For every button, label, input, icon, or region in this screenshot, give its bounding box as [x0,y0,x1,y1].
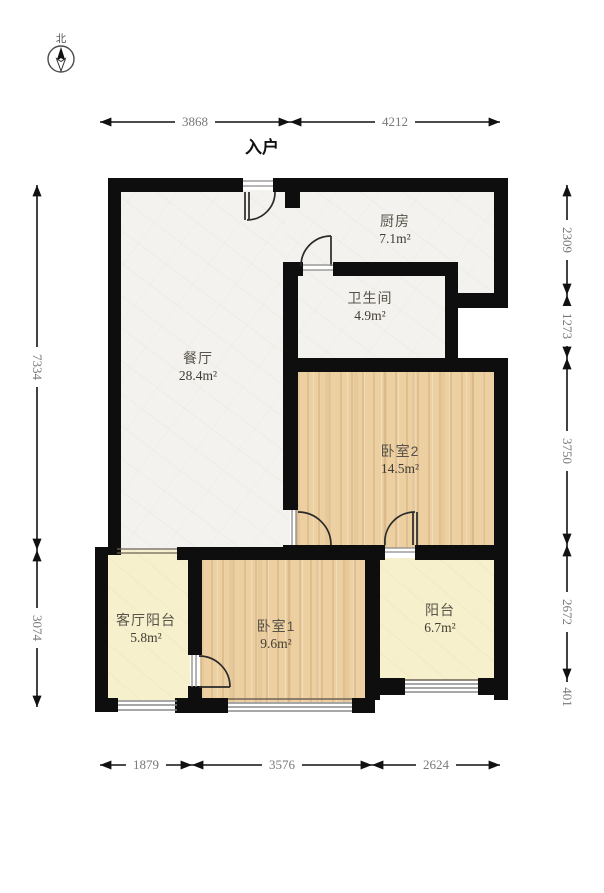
dimension-label: 2309 [560,227,575,253]
entrance-label: 入户 [245,137,279,157]
living-balcony-opening [117,549,177,553]
dimension-label: 4212 [382,114,408,129]
dimension-label: 2672 [560,599,575,625]
dimension-label: 3868 [182,114,208,129]
dimension-label: 1273 [560,313,575,339]
bedroom2-door-threshold [292,510,296,545]
living-balcony-window [118,701,177,710]
dimension-label: 3074 [30,615,45,642]
dimension-label: 401 [560,687,575,707]
thresholds [117,181,415,687]
bedroom1-door-threshold [192,655,196,687]
entrance-threshold [243,181,273,186]
bedroom2-door-arc [298,512,331,545]
windows [118,680,478,711]
bathroom-door-threshold [303,265,333,270]
dimension-labels-horizontal: 3868 4212 1879 3576 2624 [126,114,456,772]
balcony-door-arc [385,512,417,545]
bedroom1-door-arc [199,656,230,687]
dimension-labels-vertical: 7334 3074 2309 1273 3750 2672 [30,220,575,712]
plan-overlay: 北 入户 3868 4212 [0,0,604,893]
dimension-label: 3750 [560,438,575,464]
dimension-lines [37,122,567,765]
dimension-label: 1879 [133,757,159,772]
bathroom-door-arc [301,236,331,266]
dimension-label: 7334 [30,354,45,381]
balcony-door-threshold [385,548,415,552]
entrance-door-arc [245,192,275,220]
compass-icon: 北 [48,33,74,72]
dimension-label: 3576 [269,757,296,772]
dimension-label: 2624 [423,757,450,772]
compass-north-label: 北 [56,33,67,45]
floor-plan: 厨房 7.1m² 卫生间 4.9m² 餐厅 28.4m² 卧室2 14.5m² … [0,0,604,893]
doors [199,192,417,687]
bedroom1-window [228,699,352,711]
balcony-window [405,680,478,692]
